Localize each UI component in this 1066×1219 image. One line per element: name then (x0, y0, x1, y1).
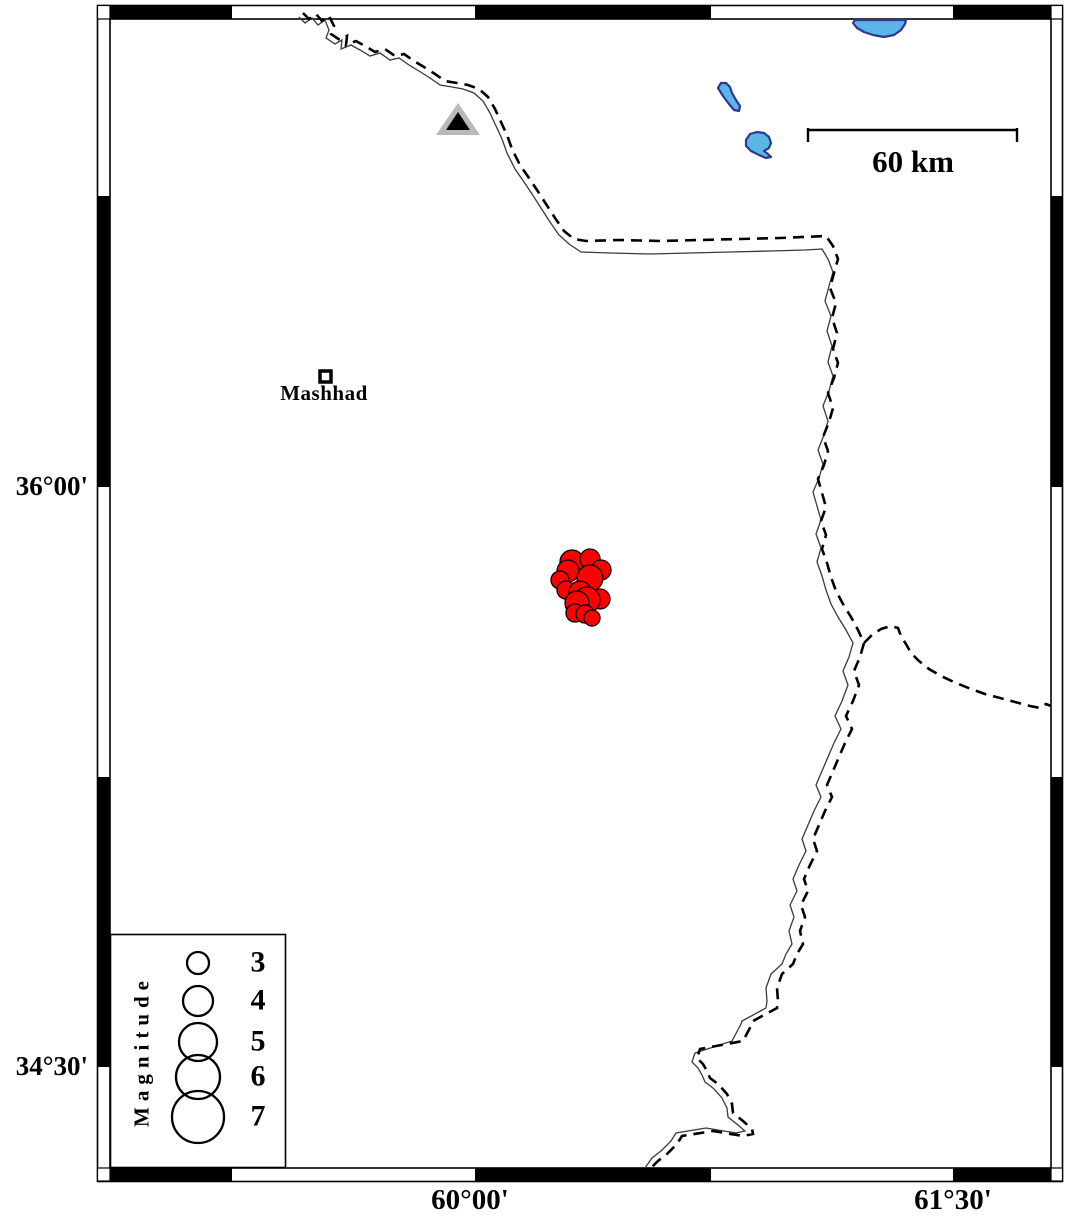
earthquake-marker (584, 610, 600, 626)
scale-bar-label: 60 km (851, 144, 975, 180)
legend-label-6: 6 (236, 1059, 280, 1093)
lat-label-36-00: 36°00' (0, 471, 88, 502)
lat-label-34-30: 34°30' (0, 1051, 88, 1082)
frame-corner (1051, 1168, 1063, 1181)
seismicity-map-page: { "map_frame": { "lat_annotations": [ {"… (0, 0, 1066, 1219)
legend-label-3: 3 (236, 945, 280, 979)
frame-corner (98, 6, 111, 20)
frame-corner (1051, 6, 1063, 20)
map-canvas (0, 0, 1066, 1219)
legend-label-4: 4 (236, 983, 280, 1017)
legend-title: Magnitude (130, 975, 155, 1127)
frame-corner (98, 1168, 111, 1181)
legend-label-5: 5 (236, 1024, 280, 1058)
lon-label-61-30: 61°30' (883, 1184, 1023, 1217)
legend-label-7: 7 (236, 1099, 280, 1133)
city-label: Mashhad (254, 381, 394, 406)
lon-label-60-00: 60°00' (400, 1184, 540, 1217)
